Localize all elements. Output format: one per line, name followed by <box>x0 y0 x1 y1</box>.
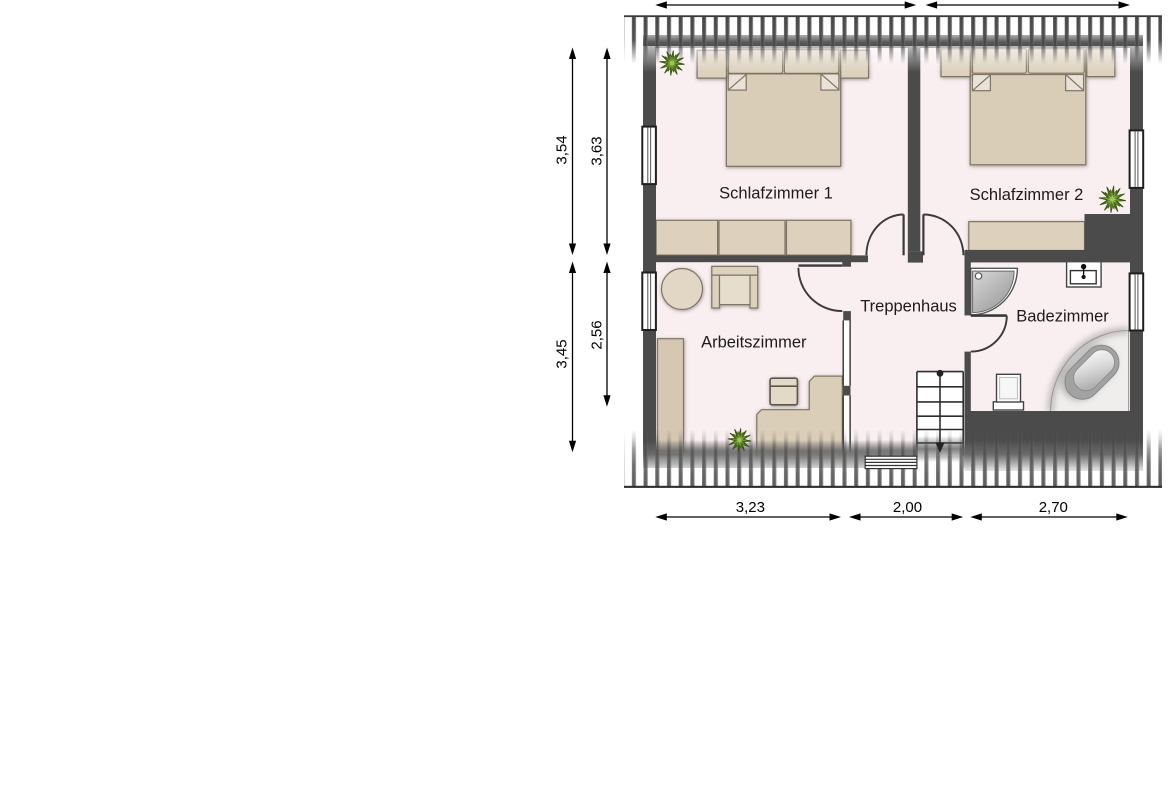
svg-text:Badezimmer: Badezimmer <box>1016 308 1109 326</box>
svg-text:Schlafzimmer 1: Schlafzimmer 1 <box>719 185 833 203</box>
svg-text:3,54: 3,54 <box>554 135 571 164</box>
svg-text:Treppenhaus: Treppenhaus <box>860 298 957 316</box>
svg-text:Schlafzimmer 2: Schlafzimmer 2 <box>970 186 1084 204</box>
svg-text:2,56: 2,56 <box>589 320 606 349</box>
svg-text:Arbeitszimmer: Arbeitszimmer <box>701 334 807 352</box>
svg-text:2,70: 2,70 <box>1039 499 1068 516</box>
svg-text:3,23: 3,23 <box>736 499 765 516</box>
svg-text:3,63: 3,63 <box>589 136 606 165</box>
svg-text:2,00: 2,00 <box>893 499 922 516</box>
svg-text:3,45: 3,45 <box>554 339 571 368</box>
